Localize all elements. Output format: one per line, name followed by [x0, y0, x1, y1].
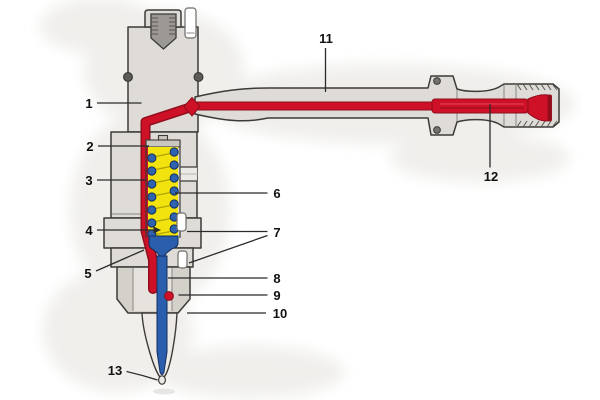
o-ring-left [124, 73, 133, 82]
fuel-gallery-dot [165, 292, 174, 301]
callout-number: 13 [108, 363, 122, 378]
callout-number: 1 [85, 96, 92, 111]
o-ring-right [194, 73, 203, 82]
inlet-fuel-core [196, 102, 432, 110]
edge-filter [432, 99, 528, 113]
callout-number: 4 [85, 223, 93, 238]
collar-dot-top [434, 78, 441, 85]
callout-number: 2 [86, 139, 93, 154]
injector-cross-section: 1 2 3 4 5 6 7 8 [0, 0, 600, 400]
callout-number: 7 [273, 225, 280, 240]
callout-number: 11 [319, 31, 333, 46]
tip-shadow [153, 389, 175, 395]
callout-number: 9 [273, 288, 280, 303]
callout-number: 6 [273, 186, 280, 201]
callout-number: 8 [273, 271, 280, 286]
dowel-pin-lower [178, 251, 187, 268]
callout-number: 5 [84, 266, 91, 281]
callout-10: 10 [187, 306, 287, 321]
callout-number: 3 [85, 173, 92, 188]
spring-shim [146, 140, 180, 147]
callout-number: 10 [273, 306, 287, 321]
dowel-pin-upper [177, 213, 186, 231]
nozzle-sac [159, 376, 166, 384]
injector-diagram-canvas: 1 2 3 4 5 6 7 8 [0, 0, 600, 400]
callout-number: 12 [484, 169, 498, 184]
nozzle-needle [157, 256, 167, 375]
collar-dot-bottom [434, 127, 441, 134]
